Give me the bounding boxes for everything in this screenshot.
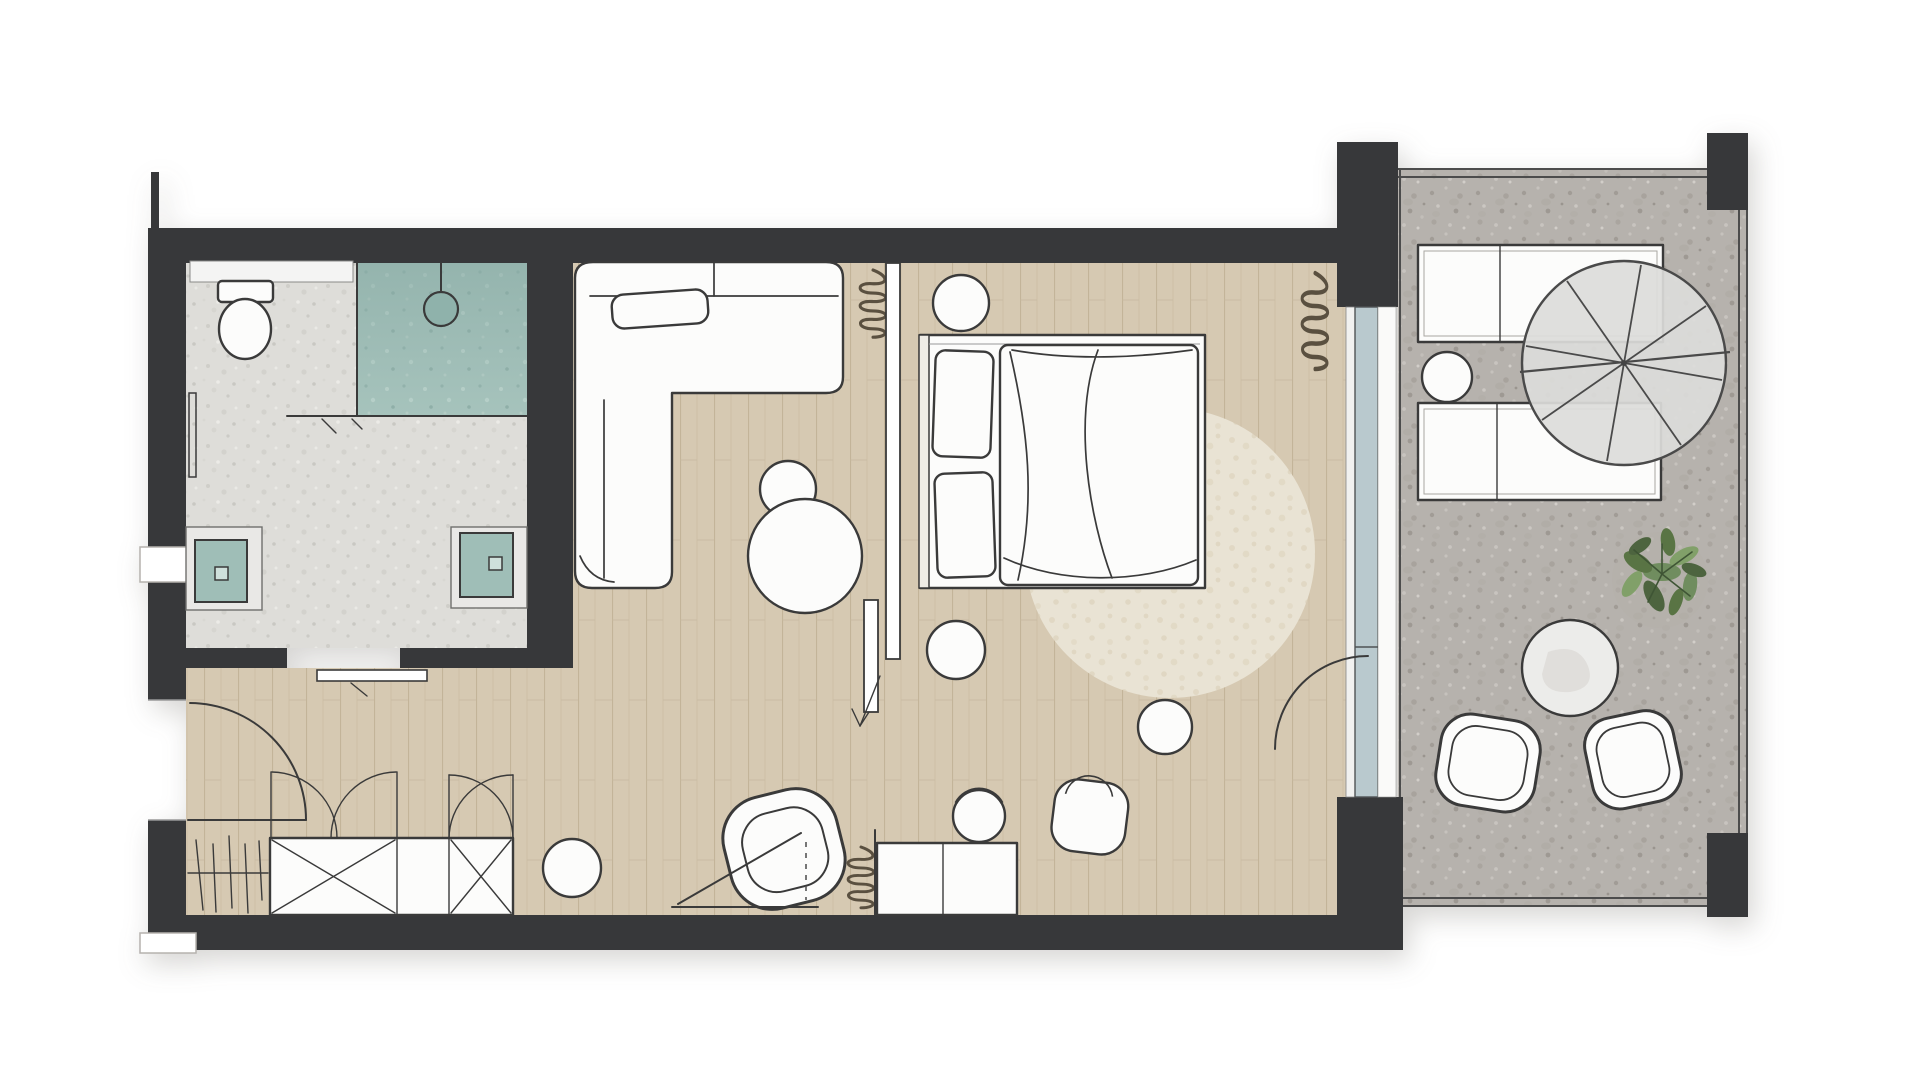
pillar-terrace-bottom-right (1707, 833, 1748, 917)
shelf (190, 261, 353, 282)
wall-bathroom-right (527, 263, 573, 668)
spiral-staircase (1520, 261, 1730, 465)
throw-pillow (611, 289, 709, 330)
wall-top (148, 228, 1337, 263)
wall-bathroom-bottom-right (400, 648, 573, 668)
pillar-room-top-right (1337, 142, 1398, 307)
pillow-top (932, 350, 994, 458)
wall-stub-top-left (151, 172, 159, 230)
coffee-table (748, 499, 862, 613)
wall-left-upper (148, 228, 186, 548)
toilet (218, 281, 273, 359)
glass-sliding-panel (1355, 307, 1378, 797)
terrace-round-table (1522, 620, 1618, 716)
nightstand-bottom (927, 621, 985, 679)
shower-head (424, 292, 458, 326)
wall-left-mid (148, 582, 186, 700)
double-bed (919, 335, 1205, 588)
pillar-terrace-top-right (1707, 133, 1748, 210)
wall-notch-lower (140, 933, 196, 953)
glass-wall (1346, 307, 1396, 797)
partition-wall (886, 263, 900, 659)
wall-notch-upper (140, 547, 188, 582)
duvet (1000, 345, 1198, 585)
partition-sliding-door (864, 600, 878, 712)
vanity-sink-right (451, 527, 527, 608)
floor-plan (0, 0, 1920, 1080)
vanity-sink-left (186, 527, 262, 610)
headboard (919, 335, 929, 588)
terrace (1398, 169, 1748, 907)
screenshot-canvas (0, 0, 1920, 1080)
lounger-side-table (1422, 352, 1472, 402)
pouf-hall (543, 839, 601, 897)
nightstand-top (933, 275, 989, 331)
pillar-room-bottom-right (1337, 797, 1403, 917)
wall-bottom (148, 915, 1403, 950)
desk-chair (953, 789, 1005, 842)
wall-bathroom-bottom-left (148, 648, 287, 668)
pillow-bottom (934, 472, 996, 578)
bucket-chair-left (1431, 710, 1544, 817)
side-table (1138, 700, 1192, 754)
console-desk (875, 830, 1017, 915)
